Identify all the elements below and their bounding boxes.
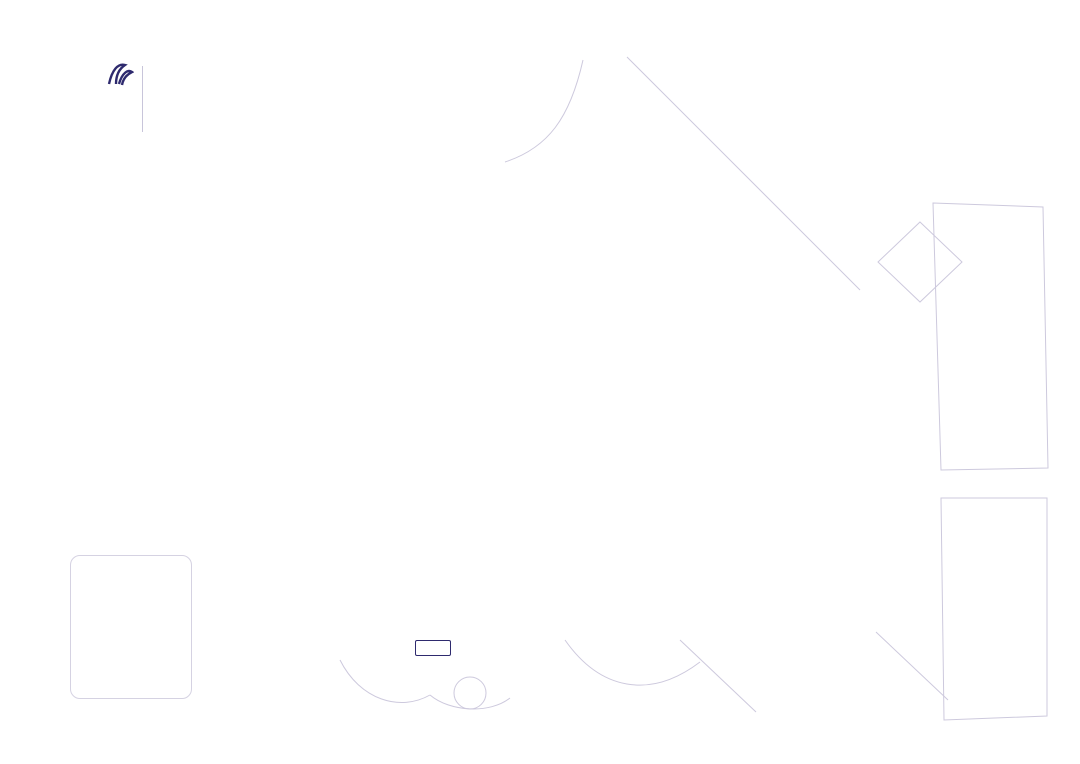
interactive-map-panel <box>70 555 192 699</box>
bus-line-n100-sign <box>415 640 451 656</box>
worldskills-hand-icon <box>104 58 134 86</box>
event-logo <box>72 58 222 143</box>
venue-map-canvas <box>0 0 1080 764</box>
logo-divider <box>142 66 143 132</box>
